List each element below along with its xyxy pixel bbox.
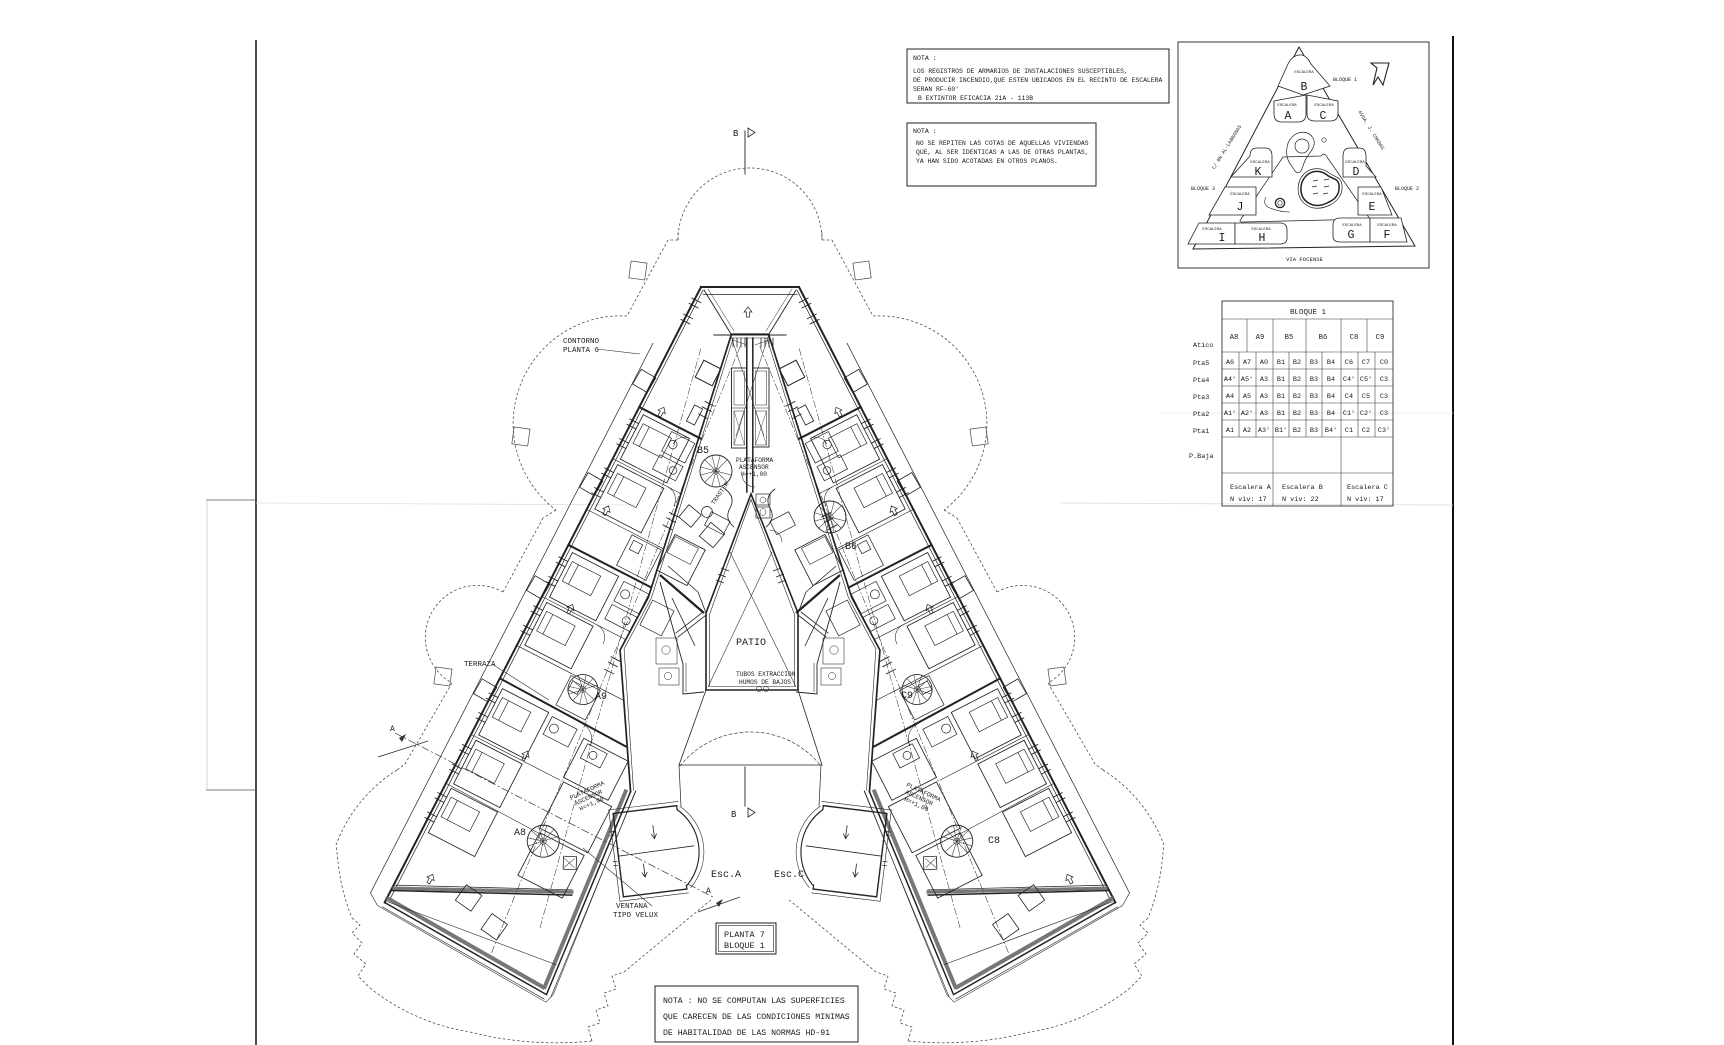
svg-text:PLATAFORMA: PLATAFORMA: [736, 457, 773, 464]
svg-text:C1': C1': [1343, 410, 1355, 418]
svg-text:B4: B4: [1327, 359, 1335, 367]
svg-text:NOTA :: NOTA :: [913, 128, 937, 135]
svg-text:Atico: Atico: [1193, 342, 1213, 350]
svg-text:ESCALERA: ESCALERA: [1294, 71, 1314, 75]
svg-text:PATIO: PATIO: [736, 638, 766, 649]
svg-text:N viv: 17: N viv: 17: [1347, 496, 1384, 504]
svg-text:DE PRODUCIR INCENDIO,QUE ESTEN: DE PRODUCIR INCENDIO,QUE ESTEN UBICADOS …: [913, 77, 1162, 84]
svg-text:B3: B3: [1310, 393, 1318, 401]
svg-text:B2: B2: [1293, 393, 1301, 401]
svg-text:C3: C3: [1380, 376, 1388, 384]
svg-text:HUMOS DE BAJOS: HUMOS DE BAJOS: [739, 679, 791, 686]
svg-text:B3: B3: [1310, 410, 1318, 418]
svg-text:B2: B2: [1293, 410, 1301, 418]
svg-text:Escalera A: Escalera A: [1230, 484, 1272, 492]
svg-text:Pta2: Pta2: [1193, 411, 1209, 419]
svg-text:TERRAZA: TERRAZA: [464, 661, 496, 669]
svg-text:A: A: [390, 725, 395, 734]
svg-text:CONTORNO: CONTORNO: [563, 338, 600, 346]
svg-text:Pta1: Pta1: [1193, 428, 1209, 436]
svg-text:A9: A9: [1256, 334, 1265, 342]
svg-text:C2': C2': [1360, 410, 1372, 418]
svg-text:A: A: [706, 887, 711, 896]
svg-text:E: E: [1369, 201, 1376, 214]
svg-text:I: I: [1219, 232, 1226, 245]
svg-text:C3': C3': [1378, 427, 1390, 435]
svg-text:BLOQUE 3: BLOQUE 3: [1191, 186, 1215, 192]
svg-text:QUE, AL SER IDENTICAS A LAS DE: QUE, AL SER IDENTICAS A LAS DE OTRAS PLA…: [916, 149, 1089, 156]
svg-text:ESCALERA: ESCALERA: [1345, 161, 1365, 165]
svg-text:A1: A1: [1226, 427, 1234, 435]
svg-text:B3: B3: [1310, 359, 1318, 367]
svg-text:Escalera B: Escalera B: [1282, 484, 1323, 492]
svg-text:BLOQUE 2: BLOQUE 2: [1395, 186, 1419, 192]
svg-text:P.Baja: P.Baja: [1189, 453, 1213, 461]
svg-text:A9: A9: [595, 692, 607, 703]
svg-text:B2: B2: [1293, 359, 1301, 367]
svg-text:B3: B3: [1310, 427, 1318, 435]
svg-text:C2: C2: [1362, 427, 1370, 435]
svg-text:B1: B1: [1277, 359, 1285, 367]
svg-text:NOTA :: NOTA :: [913, 55, 937, 62]
svg-text:N viv: 22: N viv: 22: [1282, 496, 1319, 504]
svg-text:J: J: [1237, 201, 1244, 214]
svg-text:Pta5: Pta5: [1193, 360, 1209, 368]
svg-text:A0: A0: [1260, 359, 1268, 367]
svg-text:B1: B1: [1277, 410, 1285, 418]
svg-text:B2: B2: [1293, 376, 1301, 384]
svg-text:B1': B1': [1275, 427, 1287, 435]
svg-text:B6: B6: [845, 542, 857, 553]
svg-text:A8: A8: [1230, 334, 1239, 342]
svg-text:B: B: [733, 129, 739, 139]
svg-text:Pta3: Pta3: [1193, 394, 1209, 402]
svg-text:NOTA : NO SE COMPUTAN LAS SUPE: NOTA : NO SE COMPUTAN LAS SUPERFICIES: [663, 997, 845, 1006]
svg-text:B1: B1: [1277, 376, 1285, 384]
svg-text:C9: C9: [901, 691, 913, 702]
svg-text:VIA FOCENSE: VIA FOCENSE: [1286, 256, 1324, 263]
svg-text:Esc.A: Esc.A: [711, 870, 741, 881]
svg-text:C7: C7: [1362, 359, 1370, 367]
svg-text:B4: B4: [1327, 393, 1335, 401]
svg-text:G: G: [1348, 229, 1355, 242]
svg-text:B EXTINTOR EFICACIA 21A - 113B: B EXTINTOR EFICACIA 21A - 113B: [918, 95, 1033, 102]
svg-text:C4: C4: [1345, 393, 1353, 401]
svg-text:B: B: [731, 810, 737, 820]
svg-text:ESCALERA: ESCALERA: [1342, 224, 1362, 228]
svg-text:A5: A5: [1243, 393, 1251, 401]
svg-text:SERAN RF-60': SERAN RF-60': [913, 86, 959, 93]
svg-text:K: K: [1255, 166, 1262, 179]
svg-text:A6: A6: [1226, 359, 1234, 367]
svg-text:F: F: [1384, 229, 1391, 242]
svg-text:B6: B6: [1319, 334, 1328, 342]
svg-text:NO SE REPITEN LAS COTAS DE AQU: NO SE REPITEN LAS COTAS DE AQUELLAS VIVI…: [916, 140, 1089, 147]
svg-text:C5: C5: [1362, 393, 1370, 401]
svg-text:C4': C4': [1343, 376, 1355, 384]
svg-text:A2': A2': [1241, 410, 1253, 418]
svg-text:Esc.C: Esc.C: [774, 870, 804, 881]
svg-text:B: B: [1301, 81, 1308, 94]
svg-text:LOS REGISTROS DE ARMARIOS DE I: LOS REGISTROS DE ARMARIOS DE INSTALACION…: [913, 68, 1128, 75]
svg-text:C3: C3: [1380, 393, 1388, 401]
svg-text:BLOQUE 1: BLOQUE 1: [724, 941, 765, 951]
svg-text:C6: C6: [1345, 359, 1353, 367]
svg-text:N viv: 17: N viv: 17: [1230, 496, 1267, 504]
svg-text:Pta4: Pta4: [1193, 377, 1209, 385]
svg-text:A: A: [1285, 110, 1292, 123]
svg-text:PLANTA 7: PLANTA 7: [724, 930, 765, 940]
svg-text:A3: A3: [1260, 376, 1268, 384]
svg-text:B3: B3: [1310, 376, 1318, 384]
svg-text:TIPO VELUX: TIPO VELUX: [613, 912, 659, 920]
svg-text:BLOQUE 1: BLOQUE 1: [1290, 309, 1327, 317]
svg-text:B4: B4: [1327, 376, 1335, 384]
svg-text:H: H: [1259, 232, 1266, 245]
svg-text:C5': C5': [1360, 376, 1372, 384]
svg-text:C0: C0: [1380, 359, 1388, 367]
svg-text:A5': A5': [1241, 376, 1253, 384]
svg-text:B5: B5: [1285, 334, 1294, 342]
svg-text:TUBOS EXTRACCION: TUBOS EXTRACCION: [736, 671, 796, 678]
svg-text:ESCALERA: ESCALERA: [1314, 104, 1334, 108]
svg-text:D: D: [1353, 166, 1360, 179]
svg-text:A4: A4: [1226, 393, 1234, 401]
svg-text:C8: C8: [1350, 334, 1359, 342]
svg-text:QUE CARECEN DE LAS CONDICIONES: QUE CARECEN DE LAS CONDICIONES MINIMAS: [663, 1013, 850, 1022]
svg-text:ESCALERA: ESCALERA: [1277, 104, 1297, 108]
svg-text:ESCALERA: ESCALERA: [1362, 193, 1382, 197]
svg-text:C8: C8: [988, 836, 1000, 847]
svg-text:B5: B5: [697, 446, 709, 457]
svg-text:C3: C3: [1380, 410, 1388, 418]
svg-text:C9: C9: [1376, 334, 1385, 342]
svg-text:B2: B2: [1293, 427, 1301, 435]
svg-text:ESCALERA: ESCALERA: [1377, 224, 1397, 228]
svg-text:H=+1,00: H=+1,00: [741, 471, 767, 478]
svg-text:Escalera C: Escalera C: [1347, 484, 1388, 492]
svg-text:PLANTA 6: PLANTA 6: [563, 347, 600, 355]
svg-text:YA HAN SIDO ACOTADAS EN OTROS: YA HAN SIDO ACOTADAS EN OTROS PLANOS.: [916, 158, 1058, 165]
svg-text:B4: B4: [1327, 410, 1335, 418]
svg-text:C: C: [1320, 110, 1327, 123]
svg-text:VENTANA: VENTANA: [616, 903, 648, 911]
svg-text:A1': A1': [1224, 410, 1236, 418]
svg-text:ESCALERA: ESCALERA: [1250, 161, 1270, 165]
svg-text:ASCENSOR: ASCENSOR: [739, 464, 769, 471]
svg-text:C1: C1: [1345, 427, 1353, 435]
svg-text:ESCALERA: ESCALERA: [1230, 193, 1250, 197]
svg-text:BLOQUE 1: BLOQUE 1: [1333, 77, 1357, 83]
svg-text:A2: A2: [1243, 427, 1251, 435]
svg-text:A4': A4': [1224, 376, 1236, 384]
svg-text:A3: A3: [1260, 393, 1268, 401]
svg-text:A8: A8: [514, 828, 526, 839]
svg-text:A7: A7: [1243, 359, 1251, 367]
svg-text:B1: B1: [1277, 393, 1285, 401]
svg-text:B4': B4': [1325, 427, 1337, 435]
svg-text:A3: A3: [1260, 410, 1268, 418]
svg-text:A3': A3': [1258, 427, 1270, 435]
svg-text:DE HABITALIDAD DE LAS NORMAS H: DE HABITALIDAD DE LAS NORMAS HD-91: [663, 1029, 830, 1038]
